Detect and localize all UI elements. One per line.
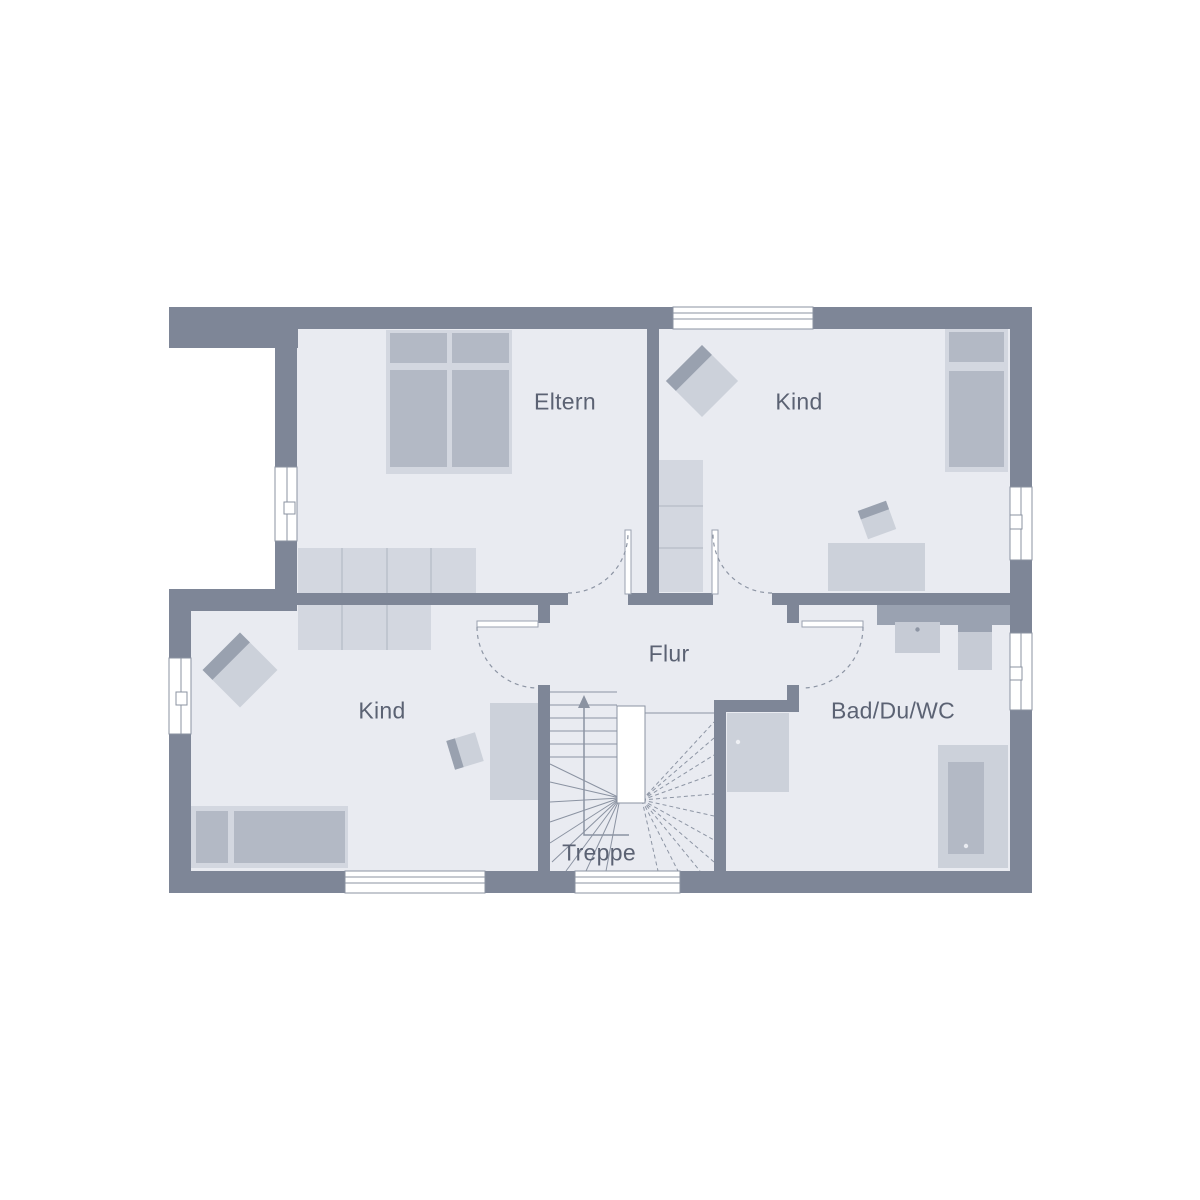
window-bad-right — [1010, 633, 1032, 710]
window-top — [673, 307, 813, 329]
room-label-kind-bottom: Kind — [358, 698, 405, 725]
bathtub — [938, 745, 1008, 868]
room-label-bad: Bad/Du/WC — [831, 698, 955, 725]
door-leaf — [712, 530, 718, 594]
stair-newel-void — [617, 706, 645, 803]
wall-flur-north-right — [772, 593, 1010, 605]
wall-left-upper — [275, 329, 297, 593]
wall-flur-north-mid — [628, 593, 713, 605]
tub-drain — [964, 844, 968, 848]
window-eltern-left — [275, 467, 297, 541]
wall-stair-left — [538, 685, 550, 871]
basin-drain — [915, 627, 919, 631]
shower-tray — [727, 713, 789, 792]
mattress — [949, 371, 1004, 467]
mattress — [452, 370, 509, 467]
exterior-notch — [169, 348, 275, 589]
floor-plan-canvas: Eltern Kind Kind Flur Bad/Du/WC Treppe — [0, 0, 1200, 1200]
pillow — [452, 333, 509, 363]
shower-drain — [736, 740, 740, 744]
window-kind-right — [1010, 487, 1032, 560]
window-kind-left — [169, 658, 191, 734]
desk — [828, 543, 925, 591]
wall-stub-left — [538, 593, 550, 623]
mattress — [390, 370, 447, 467]
pillow — [390, 333, 447, 363]
wall-notch — [169, 589, 297, 611]
wardrobe-kind — [298, 605, 431, 650]
wardrobe-eltern — [298, 548, 476, 593]
window-kind-bottom — [345, 871, 485, 893]
window-treppe-bottom — [575, 871, 680, 893]
door-leaf — [802, 621, 863, 627]
floor-plan-drawing — [0, 0, 1200, 1200]
closet-body — [659, 460, 703, 592]
single-bed — [191, 806, 348, 868]
single-bed — [945, 328, 1008, 472]
desk — [490, 703, 538, 800]
casement-mark — [284, 502, 295, 514]
bathtub-basin — [948, 762, 984, 854]
wall-bad-horizontal — [714, 700, 799, 712]
wall-top — [169, 307, 1032, 329]
closet-flur — [659, 460, 703, 592]
casement-mark — [1010, 667, 1022, 680]
wall-stair-right — [714, 712, 726, 871]
wall-left-lower — [169, 589, 191, 893]
room-label-eltern: Eltern — [534, 389, 596, 416]
shower — [727, 713, 789, 792]
cistern — [958, 605, 992, 632]
wardrobe-body — [298, 605, 431, 650]
door-leaf — [477, 621, 538, 627]
casement-mark — [1010, 515, 1022, 529]
toilet — [958, 632, 992, 670]
pillow — [949, 332, 1004, 362]
double-bed — [386, 330, 512, 474]
room-label-flur: Flur — [649, 641, 690, 668]
door-leaf — [625, 530, 631, 594]
wall-stub-right — [787, 593, 799, 623]
room-label-treppe: Treppe — [562, 840, 636, 867]
wall-room-divider — [647, 329, 659, 605]
wall-right — [1010, 307, 1032, 893]
room-label-kind-top: Kind — [775, 389, 822, 416]
wall-flur-north-left — [297, 593, 568, 605]
mattress — [234, 811, 345, 863]
pillow — [196, 811, 228, 863]
washbasin — [895, 622, 940, 653]
casement-mark — [176, 692, 187, 705]
